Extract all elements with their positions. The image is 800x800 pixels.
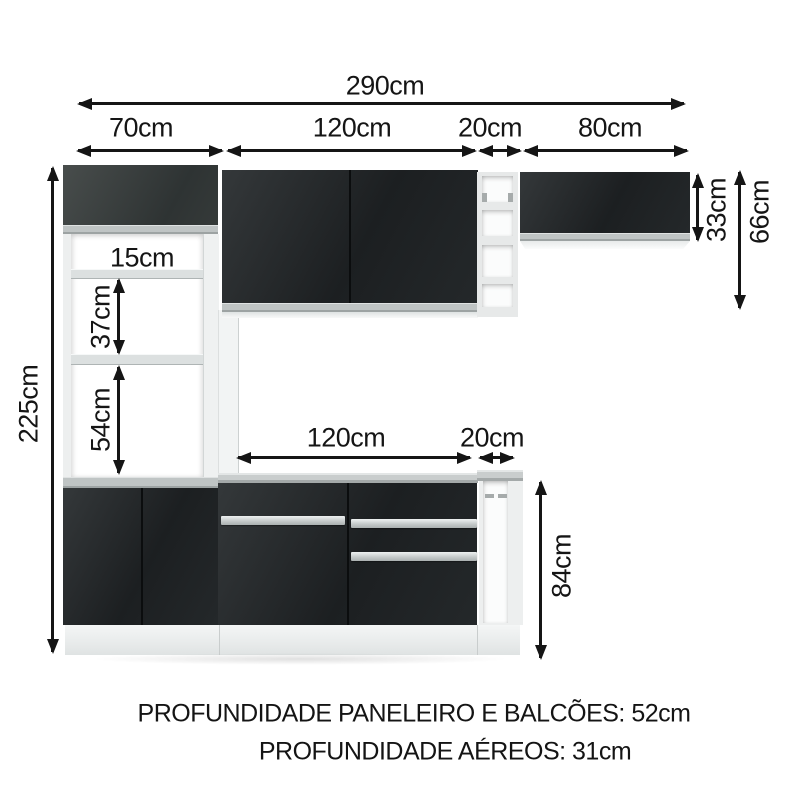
plinth-seam-2: [477, 625, 478, 655]
dim-tall-width-arrow: [78, 149, 222, 152]
plinth-seam-1: [219, 625, 220, 655]
niche-hinge-right: [508, 193, 513, 202]
dim-wall80-width-arrow: [525, 149, 687, 152]
wall-cabinet-80-bottom-strip: [520, 233, 690, 241]
side-unit-hinge-2: [498, 494, 507, 498]
dim-gap-bottom-arrow: [117, 367, 120, 473]
dim-gap-middle-arrow: [117, 280, 120, 353]
niche-hinge-left: [482, 193, 487, 202]
dim-gap-top-label: 15cm: [110, 243, 174, 274]
dim-counter-width-arrow: [238, 456, 470, 459]
counter-drawer-handle-2: [351, 552, 477, 561]
depth-note-line1: PROFUNDIDADE PANELEIRO E BALCÕES: 52cm: [138, 700, 691, 729]
dim-counter-side-label: 20cm: [460, 423, 524, 454]
dim-right-total-height-arrow: [738, 172, 741, 308]
wall-cabinet-120-underside: [222, 312, 478, 318]
wall-cabinet-80-front: [520, 172, 690, 233]
niche-opening-3: [482, 245, 513, 277]
counter-divider: [347, 483, 349, 625]
kitchen-dimension-diagram: 290cm 70cm 120cm 20cm 80cm 225cm 15cm 37…: [0, 0, 800, 800]
counter-door-handle: [221, 516, 345, 525]
dim-total-width-arrow: [79, 102, 684, 105]
dim-total-height-arrow: [51, 168, 54, 652]
wall-cabinet-80-underside: [520, 241, 690, 249]
dim-niche-width-arrow: [480, 149, 520, 152]
dim-total-height-label: 225cm: [14, 365, 45, 444]
dim-counter-width-label: 120cm: [307, 423, 386, 454]
dim-wall80-height-arrow: [696, 175, 699, 240]
tall-cabinet-door-divider: [141, 488, 143, 625]
tall-cabinet-right-wall: [203, 234, 219, 477]
dim-gap-bottom-label: 54cm: [86, 388, 117, 452]
side-unit-hinge-1: [485, 494, 494, 498]
dim-wall80-width-label: 80cm: [578, 113, 642, 144]
depth-note-line2: PROFUNDIDADE AÉREOS: 31cm: [259, 738, 631, 767]
dim-wall120-width-arrow: [228, 149, 475, 152]
side-unit-opening: [483, 481, 508, 623]
plinth: [65, 625, 520, 655]
floor-shadow: [90, 653, 510, 665]
tall-cabinet-counter-strip: [63, 477, 218, 488]
tall-cabinet-top-strip: [63, 225, 218, 234]
dim-counter-side-arrow: [480, 456, 513, 459]
side-unit-top: [477, 470, 523, 481]
dim-niche-width-label: 20cm: [458, 113, 522, 144]
dim-total-width-label: 290cm: [346, 71, 425, 102]
tall-cabinet-top-door: [63, 165, 218, 225]
dim-counter-height-label: 84cm: [547, 534, 578, 598]
dim-wall80-height-label: 33cm: [702, 178, 733, 242]
wall-cabinet-120-divider: [349, 170, 351, 303]
counter-drawer-handle-1: [351, 519, 477, 528]
tall-cabinet-shelf-2: [71, 354, 203, 364]
dim-wall120-width-label: 120cm: [313, 113, 392, 144]
niche-opening-4: [482, 284, 513, 307]
niche-opening-2: [482, 210, 513, 236]
dim-counter-height-arrow: [539, 482, 542, 658]
dim-right-total-height-label: 66cm: [745, 180, 776, 244]
wall-cabinet-120-bottom-strip: [222, 303, 478, 312]
counter-top: [218, 473, 478, 483]
dim-tall-width-label: 70cm: [109, 113, 173, 144]
